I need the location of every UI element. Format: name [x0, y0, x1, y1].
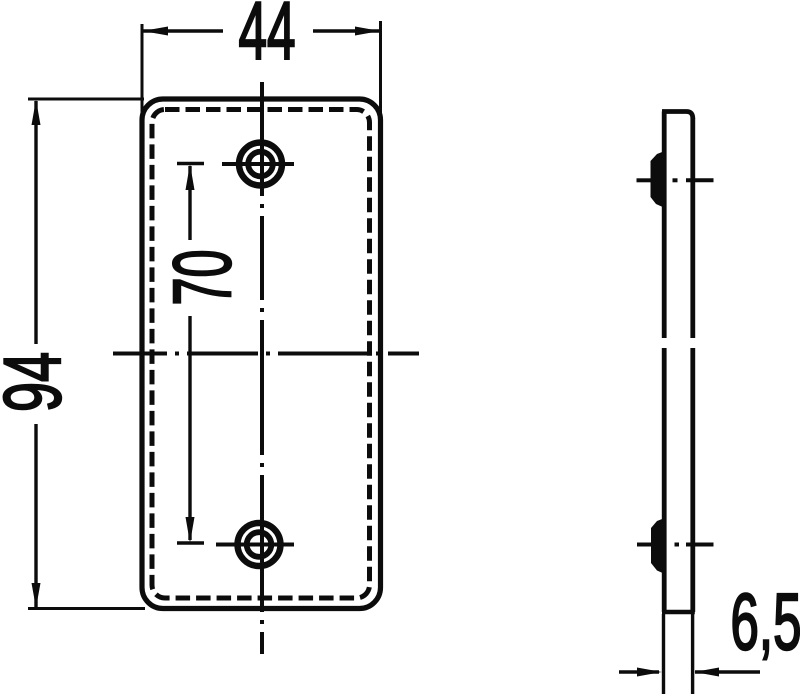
svg-text:94: 94	[0, 352, 78, 412]
svg-text:70: 70	[157, 250, 248, 306]
svg-text:6,5: 6,5	[731, 577, 800, 666]
svg-text:44: 44	[239, 0, 296, 77]
